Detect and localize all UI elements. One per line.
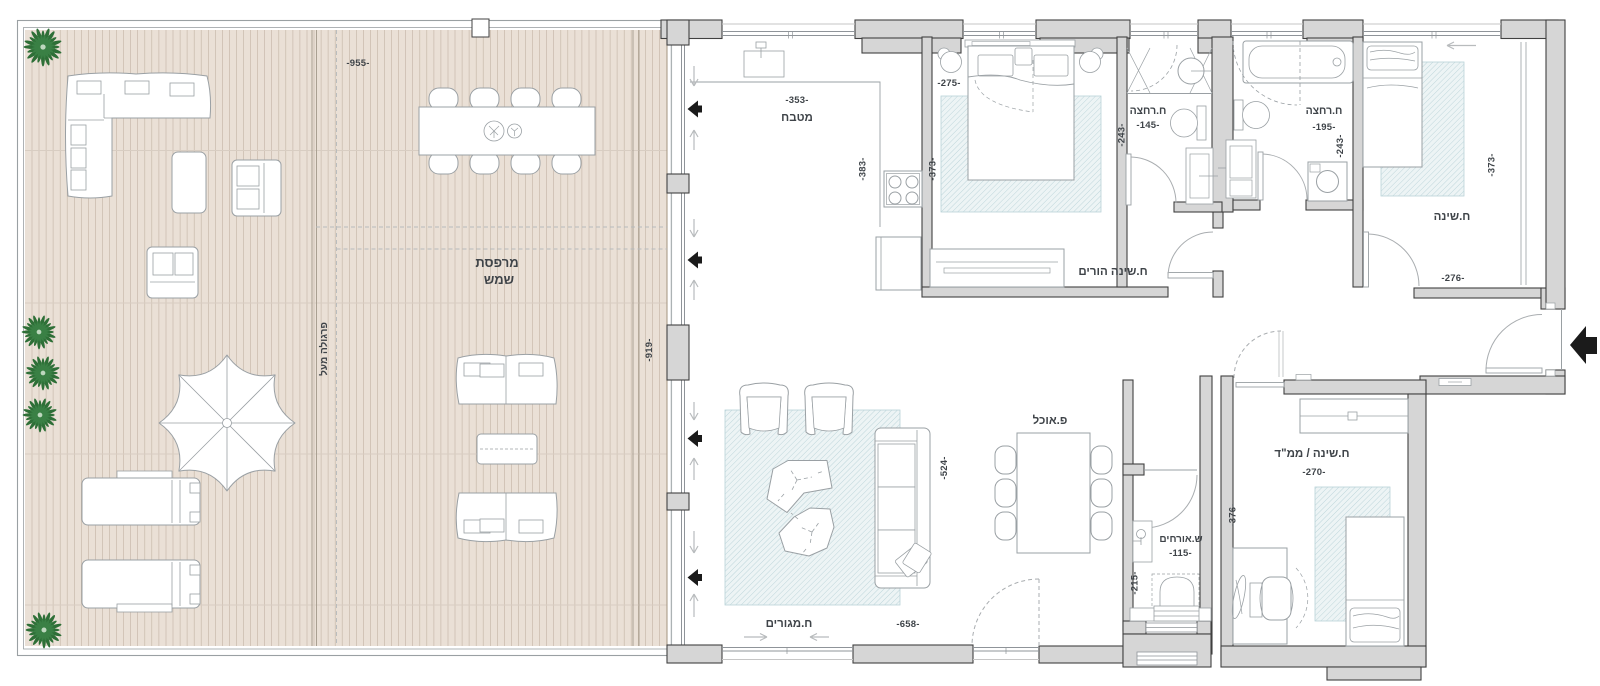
svg-text:מטבח: מטבח bbox=[781, 112, 813, 124]
svg-text:-353-: -353- bbox=[785, 95, 808, 106]
svg-text:-243-: -243- bbox=[1117, 123, 1128, 146]
svg-text:מרפסת: מרפסת bbox=[475, 255, 518, 270]
svg-text:-145-: -145- bbox=[1136, 120, 1159, 131]
svg-text:ש.אורחים: ש.אורחים bbox=[1159, 534, 1202, 545]
svg-text:-373-: -373- bbox=[928, 157, 939, 180]
svg-text:-195-: -195- bbox=[1312, 122, 1335, 133]
svg-text:-373-: -373- bbox=[1487, 153, 1498, 176]
svg-text:ח.רחצה: ח.רחצה bbox=[1306, 105, 1343, 117]
svg-text:פ.אוכל: פ.אוכל bbox=[1033, 414, 1068, 427]
svg-text:-919-: -919- bbox=[644, 338, 655, 361]
svg-text:פרגולה מעל: פרגולה מעל bbox=[318, 322, 330, 376]
svg-text:-955-: -955- bbox=[346, 58, 369, 69]
svg-text:-376-: -376- bbox=[1228, 503, 1239, 526]
svg-text:ח.שינה / ממ"ד: ח.שינה / ממ"ד bbox=[1274, 448, 1349, 460]
svg-text:-243-: -243- bbox=[1335, 134, 1346, 157]
svg-text:ח.שינה: ח.שינה bbox=[1434, 211, 1471, 223]
svg-text:-524-: -524- bbox=[939, 456, 950, 479]
svg-text:ח.רחצה: ח.רחצה bbox=[1130, 105, 1167, 117]
svg-text:-270-: -270- bbox=[1302, 467, 1325, 478]
svg-text:-658-: -658- bbox=[896, 619, 919, 630]
svg-text:-115-: -115- bbox=[1169, 548, 1192, 559]
svg-text:-215-: -215- bbox=[1130, 571, 1141, 594]
svg-text:ח.מגורים: ח.מגורים bbox=[766, 618, 813, 630]
svg-text:-383-: -383- bbox=[858, 157, 869, 180]
svg-text:ח.שינה הורים: ח.שינה הורים bbox=[1078, 266, 1147, 278]
svg-text:-276-: -276- bbox=[1441, 273, 1464, 284]
svg-text:שמש: שמש bbox=[484, 272, 514, 287]
svg-text:-275-: -275- bbox=[937, 78, 960, 89]
